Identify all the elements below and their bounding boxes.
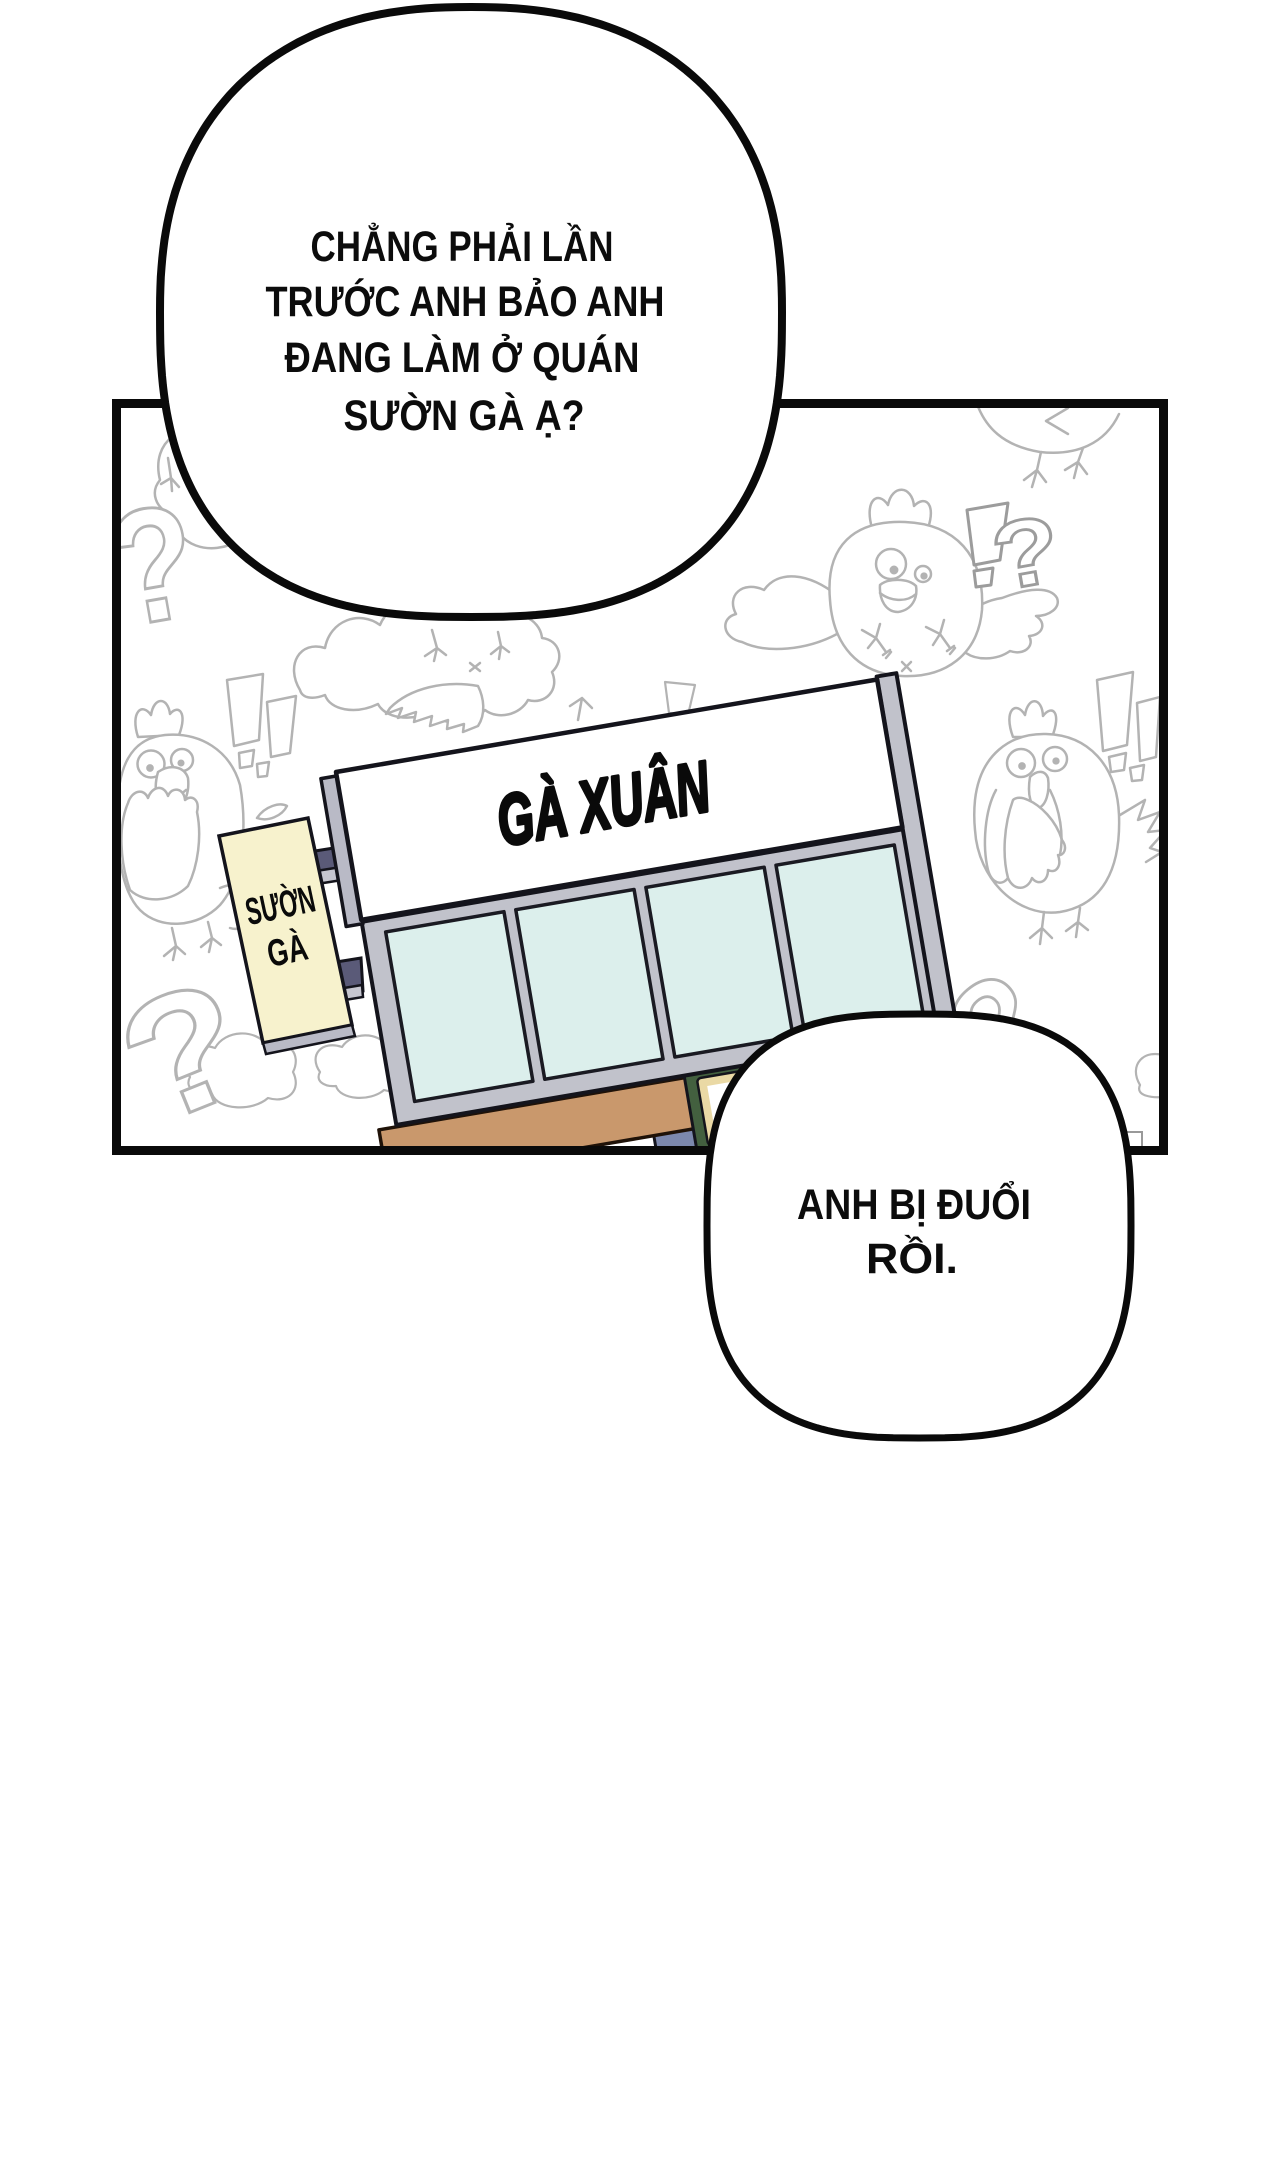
svg-text:TRƯỚC ANH BẢO ANH: TRƯỚC ANH BẢO ANH <box>266 277 665 326</box>
svg-text:ANH BỊ ĐUỔI: ANH BỊ ĐUỔI <box>797 1179 1031 1229</box>
svg-text:CHẲNG PHẢI LẦN: CHẲNG PHẢI LẦN <box>311 222 614 271</box>
svg-text:ĐANG LÀM Ở QUÁN: ĐANG LÀM Ở QUÁN <box>285 333 640 382</box>
svg-text:RỒI.: RỒI. <box>866 1234 958 1283</box>
svg-text:SƯỜN GÀ Ạ?: SƯỜN GÀ Ạ? <box>344 391 585 440</box>
svg-text:?: ? <box>984 494 1068 611</box>
svg-text:?: ? <box>95 943 274 1162</box>
